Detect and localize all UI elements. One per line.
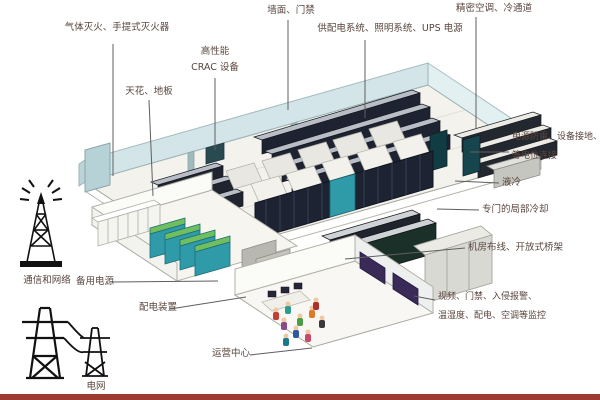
label-crac: 高性能 CRAC 设备 (191, 44, 239, 76)
label-lightning-line2: 等电位连接 (512, 147, 600, 166)
label-monitoring-line1: 视频、门禁、入侵报警、 (438, 288, 546, 307)
label-crac-line1: 高性能 (191, 44, 239, 60)
label-operation-center: 运营中心 (212, 348, 250, 360)
label-precision-ac: 精密空调、冷通道 (456, 3, 532, 15)
radio-tower-icon (20, 180, 62, 267)
label-power-supply-system: 供配电系统、照明系统、UPS 电源 (317, 23, 462, 35)
label-crac-line2: CRAC 设备 (191, 60, 239, 76)
label-lightning-line1: 电源防雷、设备接地、 (512, 128, 600, 147)
datacenter-diagram: 气体灭火、手提式灭火器 高性能 CRAC 设备 天花、地板 墙面、门禁 供配电系… (0, 0, 600, 400)
bottom-strip (0, 394, 600, 400)
label-fire-suppression: 气体灭火、手提式灭火器 (65, 22, 170, 34)
label-comm-network: 通信和网络 (23, 275, 71, 287)
isometric-datacenter-illustration (0, 0, 600, 400)
pod-teal-doors (330, 174, 355, 217)
label-power-grid: 电网 (86, 381, 105, 393)
label-monitoring-line2: 温湿度、配电、空调等监控 (438, 307, 546, 326)
label-monitoring: 视频、门禁、入侵报警、 温湿度、配电、空调等监控 (438, 288, 546, 326)
label-cabling-tray: 机房布线、开放式桥架 (468, 242, 563, 254)
label-backup-power: 备用电源 (76, 276, 114, 288)
label-wall-access: 墙面、门禁 (267, 5, 315, 17)
label-liquid-cooling: 液冷 (502, 177, 521, 189)
label-local-cooling: 专门的局部冷却 (482, 204, 549, 216)
wall-end-cap (79, 160, 85, 186)
label-lightning-grounding: 电源防雷、设备接地、 等电位连接 (512, 128, 600, 166)
transmission-pylon-icon (22, 308, 110, 378)
label-power-distribution: 配电装置 (139, 302, 177, 314)
label-ceiling-floor: 天花、地板 (125, 86, 173, 98)
wall-corner-pillar (85, 143, 110, 192)
